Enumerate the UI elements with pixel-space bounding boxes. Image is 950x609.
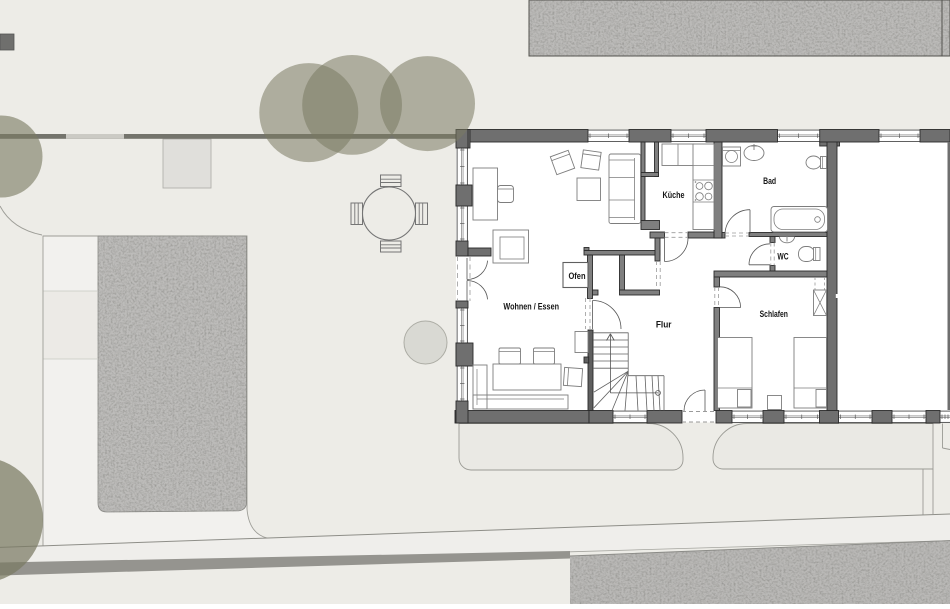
svg-text:WC: WC bbox=[777, 251, 789, 261]
svg-text:Schlafen: Schlafen bbox=[760, 309, 788, 319]
svg-text:Wohnen / Essen: Wohnen / Essen bbox=[503, 302, 559, 312]
svg-text:Flur: Flur bbox=[656, 319, 672, 329]
svg-text:Küche: Küche bbox=[663, 190, 685, 200]
svg-text:Bad: Bad bbox=[763, 176, 776, 186]
svg-text:Ofen: Ofen bbox=[568, 271, 585, 281]
